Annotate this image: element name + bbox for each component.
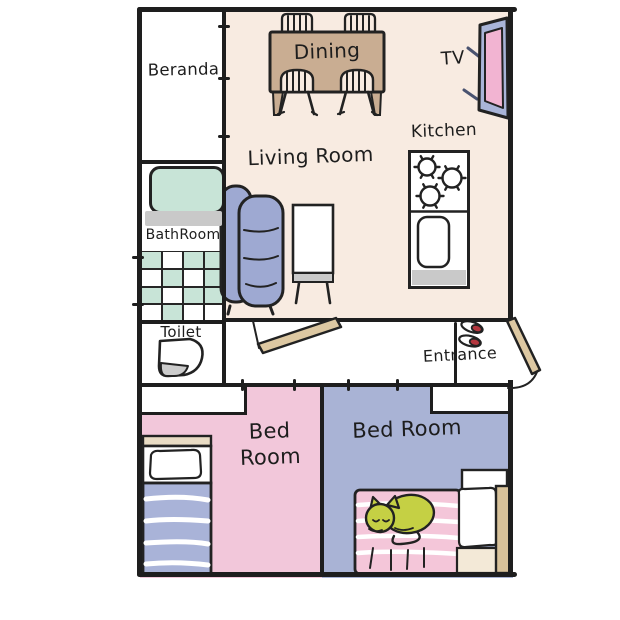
label-tv: TV <box>435 47 470 72</box>
door-tick <box>396 379 399 391</box>
bed-right <box>351 464 513 578</box>
tile <box>141 269 162 287</box>
label-beranda: Beranda <box>141 59 226 81</box>
window-tick <box>218 135 230 138</box>
tile <box>183 251 204 269</box>
sofa-icon <box>218 180 288 316</box>
label-living-room: Living Room <box>238 141 384 171</box>
tile <box>162 269 183 287</box>
floor-plan: Beranda Dining Living Room TV Kitchen Ba… <box>0 0 620 620</box>
closet-bedroom-right <box>430 387 513 414</box>
label-dining: Dining <box>272 37 383 66</box>
bed-left <box>141 434 215 578</box>
pillow <box>459 488 497 547</box>
label-bedroom-left-line2: Room <box>230 443 311 472</box>
label-bathroom: BathRoom <box>139 227 227 245</box>
kitchen-sink <box>418 217 449 267</box>
wall-top <box>137 7 517 12</box>
door-tick <box>347 379 350 391</box>
wall-right <box>508 7 513 577</box>
bathroom-tiles <box>141 251 225 322</box>
toilet-bowl <box>152 336 222 386</box>
kitchen-counter <box>408 150 470 290</box>
label-kitchen: Kitchen <box>404 120 485 144</box>
room-beranda <box>140 8 227 164</box>
bath-gray-strip <box>145 211 222 226</box>
bathtub <box>149 166 225 214</box>
entrance-door-gap <box>507 324 514 380</box>
wall-bedroom-divider <box>320 385 324 577</box>
door-tick <box>241 379 244 391</box>
wall-hall-bedrooms <box>137 383 513 387</box>
tile <box>183 269 204 287</box>
window-tick <box>132 303 144 306</box>
closet-bedroom-left <box>142 387 247 415</box>
door-tick <box>293 379 296 391</box>
wall-bottom <box>137 572 517 577</box>
window-tick <box>218 25 230 28</box>
bed-headboard <box>143 436 211 446</box>
side-table <box>290 202 336 306</box>
tile <box>141 251 162 269</box>
label-toilet: Toilet <box>146 323 216 342</box>
label-bedroom-left: Bed Room <box>229 417 311 472</box>
wall-beranda-bath <box>137 160 226 164</box>
counter-gray-strip <box>412 270 466 285</box>
tile <box>141 287 162 305</box>
tile <box>162 251 183 269</box>
wall-left <box>137 7 142 577</box>
wall-living-hall <box>222 318 513 322</box>
tile <box>183 287 204 305</box>
chair-icon <box>282 14 375 32</box>
label-bedroom-right: Bed Room <box>346 414 469 444</box>
tile <box>162 287 183 305</box>
label-bedroom-left-line1: Bed <box>229 417 310 446</box>
pillow <box>150 450 201 479</box>
bed-base <box>457 548 497 573</box>
window-tick <box>132 256 144 259</box>
